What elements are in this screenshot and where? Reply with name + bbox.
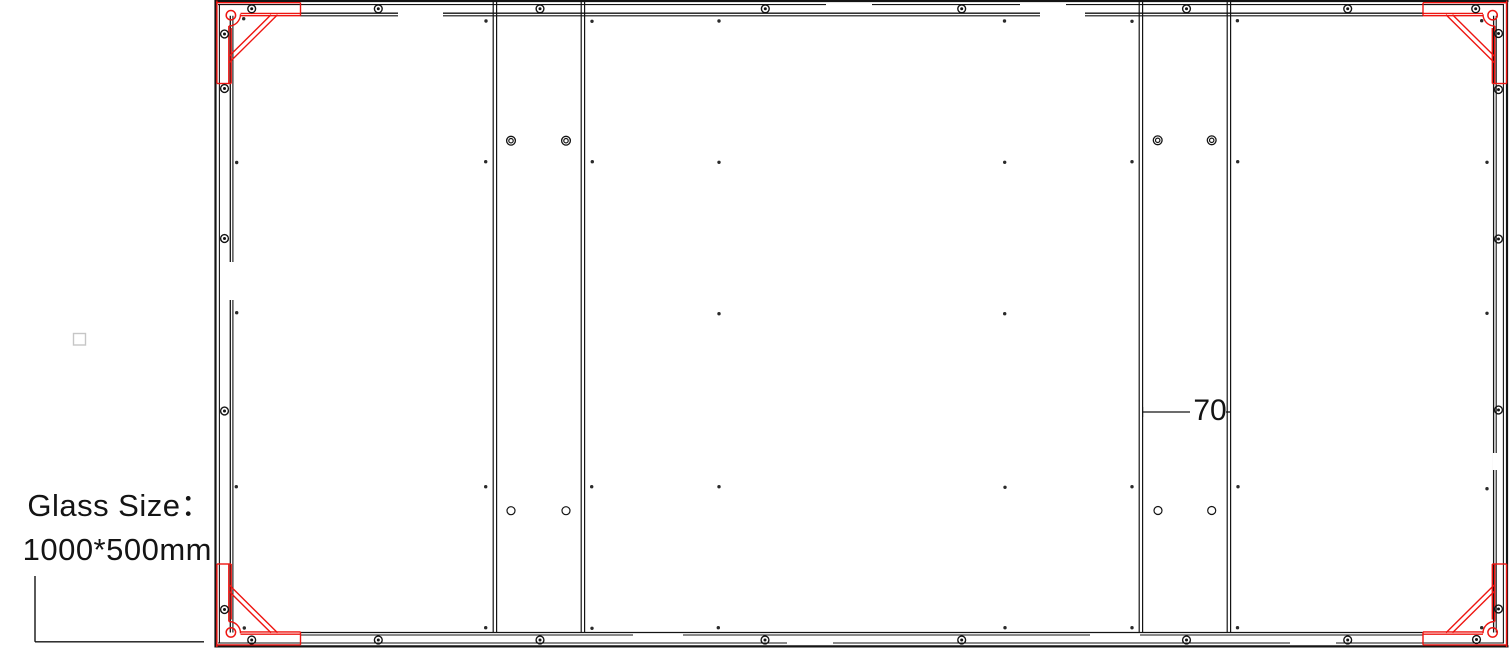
ring-holes-layer	[507, 507, 1216, 515]
frame-assembly-drawing: Glass Size： 1000*500mm 70	[0, 0, 1509, 648]
corner-brackets-layer	[216, 1, 1508, 648]
glass-size-label: Glass Size： 1000*500mm	[0, 484, 212, 572]
faint-square-marker	[74, 334, 86, 346]
glass-size-title: Glass Size：	[0, 484, 212, 528]
rivet-dots-layer	[235, 17, 1489, 630]
glass-size-value: 1000*500mm	[0, 528, 212, 572]
screw-holes-layer	[221, 5, 1503, 644]
frame-lines-layer	[35, 0, 1509, 648]
bar-width-dimension: 70	[1188, 394, 1232, 428]
grommet-holes-layer	[507, 136, 1217, 145]
frame-drawing-svg	[0, 0, 1509, 648]
segment-gaps-layer	[229, 4, 1497, 644]
